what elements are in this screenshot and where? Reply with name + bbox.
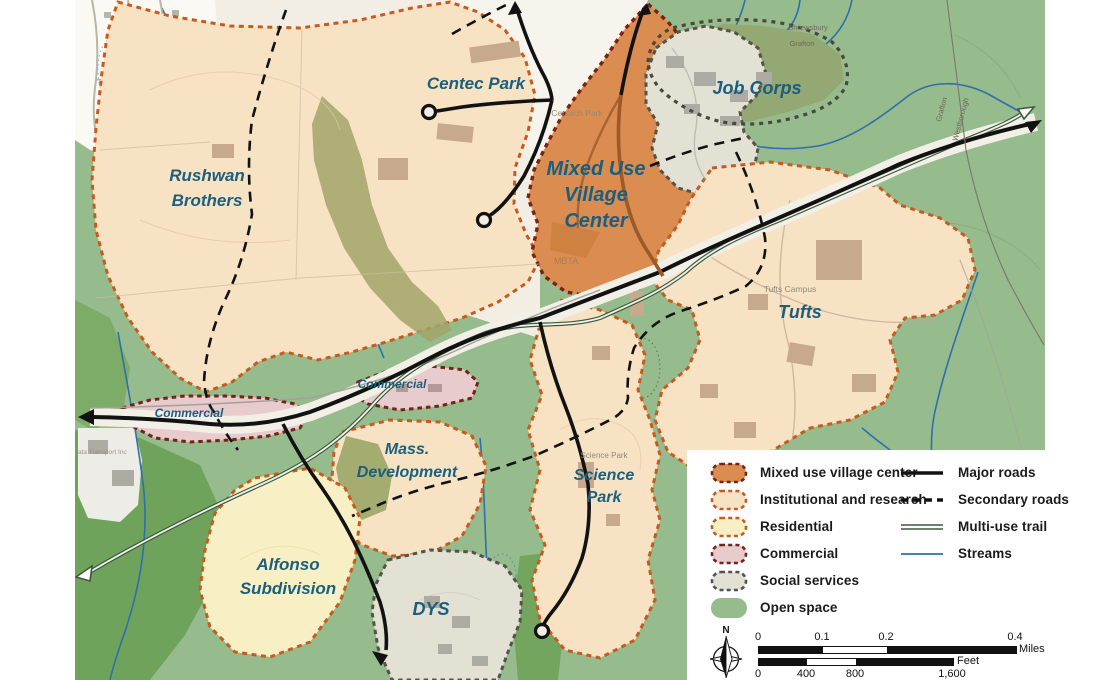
miles-tick: 0.2 (878, 631, 893, 643)
feet-unit: Feet (957, 655, 979, 667)
legend-item-multi-use-trail: Multi-use trail (899, 513, 1069, 540)
label-science-1: Science (574, 467, 635, 484)
legend: Mixed use village center Institutional a… (687, 450, 1120, 680)
label-job-corps: Job Corps (712, 78, 801, 98)
left-margin (0, 0, 75, 680)
legend-item-mixed-use: Mixed use village center (709, 459, 927, 486)
label-alfonso-1: Alfonso (255, 555, 319, 574)
legend-item-major-roads: Major roads (899, 459, 1069, 486)
miles-bar (758, 646, 1017, 654)
label-alfonso-2: Subdivision (240, 579, 336, 598)
base-label-shrewsbury: Shrewsbury (788, 23, 828, 32)
feet-tick: 800 (846, 668, 864, 680)
base-label-data-transport: Data Transport Inc (73, 449, 127, 456)
miles-tick: 0 (755, 631, 761, 643)
planning-map: Centech Park MBTA Tufts Campus Science P… (0, 0, 1120, 680)
miles-tick: 0.4 (1007, 631, 1022, 643)
social-services-swatch-icon (709, 569, 749, 593)
stream-icon (899, 549, 945, 559)
feet-tick: 1,600 (938, 668, 966, 680)
major-road-icon (899, 468, 945, 478)
miles-unit: Miles (1019, 643, 1045, 655)
legend-label: Secondary roads (958, 492, 1069, 507)
multi-use-trail-icon (899, 522, 945, 532)
label-mixed-3: Center (564, 210, 629, 232)
label-mass-2: Development (357, 464, 458, 481)
label-tufts: Tufts (778, 302, 822, 322)
secondary-road-icon (899, 495, 945, 505)
label-commercial-west: Commercial (155, 406, 224, 420)
label-rushwan-2: Brothers (172, 191, 243, 210)
label-mixed-2: Village (564, 184, 628, 206)
residential-swatch-icon (709, 515, 749, 539)
legend-label: Open space (760, 600, 838, 615)
feet-bar (758, 658, 954, 666)
feet-tick: 400 (797, 668, 815, 680)
legend-item-secondary-roads: Secondary roads (899, 486, 1069, 513)
legend-item-residential: Residential (709, 513, 927, 540)
institutional-swatch-icon (709, 488, 749, 512)
legend-label: Mixed use village center (760, 465, 918, 480)
legend-zone-items: Mixed use village center Institutional a… (709, 459, 927, 621)
open-space-swatch-icon (709, 596, 749, 620)
legend-line-items: Major roads Secondary roads Multi-use tr… (899, 459, 1069, 567)
north-label: N (722, 625, 729, 636)
north-arrow: N (703, 622, 749, 680)
legend-label: Major roads (958, 465, 1036, 480)
legend-item-open-space: Open space (709, 594, 927, 621)
feet-tick: 0 (755, 668, 761, 680)
legend-label: Residential (760, 519, 833, 534)
legend-label: Multi-use trail (958, 519, 1047, 534)
label-mixed-1: Mixed Use (547, 158, 646, 180)
legend-label: Streams (958, 546, 1012, 561)
label-centec-park: Centec Park (427, 74, 527, 93)
legend-item-streams: Streams (899, 540, 1069, 567)
miles-tick: 0.1 (814, 631, 829, 643)
base-label-science-park: Science Park (580, 451, 628, 460)
legend-label: Commercial (760, 546, 838, 561)
label-science-2: Park (587, 489, 623, 506)
label-rushwan-1: Rushwan (169, 166, 245, 185)
legend-item-commercial: Commercial (709, 540, 927, 567)
commercial-swatch-icon (709, 542, 749, 566)
label-dys: DYS (412, 599, 449, 619)
base-label-mbta: MBTA (554, 256, 578, 266)
legend-item-institutional: Institutional and research (709, 486, 927, 513)
label-mass-1: Mass. (385, 441, 429, 458)
base-label-centech-park: Centech Park (551, 108, 603, 118)
base-label-tufts-campus: Tufts Campus (764, 284, 817, 294)
legend-label: Social services (760, 573, 859, 588)
base-label-grafton: Grafton (789, 39, 814, 48)
legend-item-social-services: Social services (709, 567, 927, 594)
label-commercial-mid: Commercial (358, 377, 427, 391)
mixed-use-swatch-icon (709, 461, 749, 485)
